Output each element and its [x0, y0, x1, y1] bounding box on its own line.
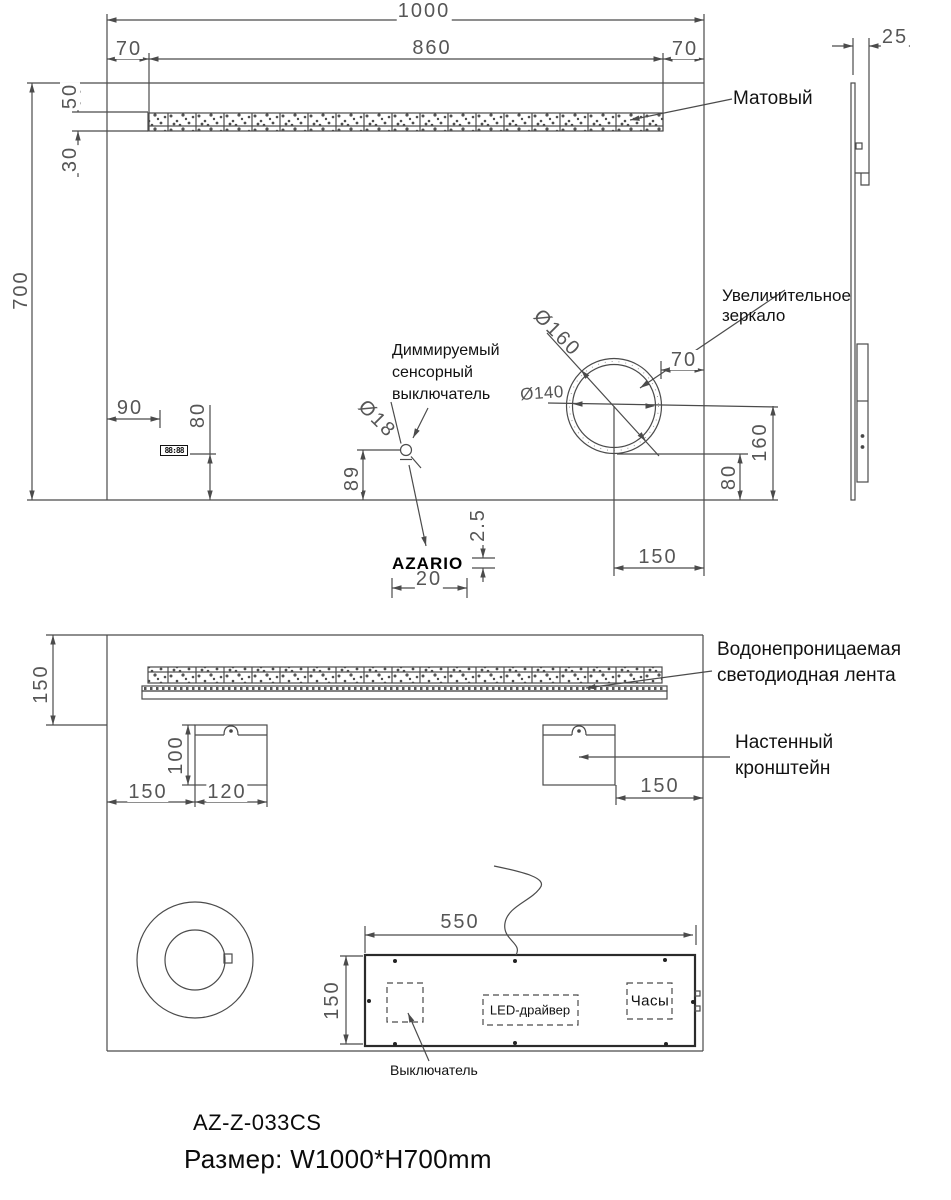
dim-bracket-height: 100 [166, 734, 186, 775]
dim-bracket-width: 120 [206, 782, 247, 802]
dim-logo-gap: 2.5 [468, 507, 488, 543]
label-wall-bracket: Настенный кронштейн [735, 730, 833, 782]
dim-strip-height: 30 [60, 145, 80, 173]
model-number: AZ-Z-033CS [193, 1110, 321, 1136]
digital-clock-display: 88:88 [160, 445, 188, 456]
dim-clock-left-offset: 90 [116, 398, 144, 418]
dim-bracket-right-offset: 150 [639, 776, 680, 796]
label-clock-module: Часы [631, 994, 670, 1009]
profile-lower-bracket [857, 344, 868, 482]
power-cable [494, 866, 542, 955]
dimension-arrowheads [29, 17, 878, 1044]
dim-bracket-left-offset: 150 [127, 782, 168, 802]
front-view-dimensions [32, 20, 704, 598]
dim-overall-width: 1000 [397, 1, 452, 21]
rear-view-dimensions [46, 635, 703, 1044]
overall-size-text: Размер: W1000*H700mm [184, 1144, 492, 1175]
label-dimmer-touch-switch: Диммируемый сенсорный выключатель [392, 340, 500, 406]
led-strip-housing [142, 691, 667, 699]
profile-hook-tab [856, 143, 862, 149]
rear-magnifier-back [137, 902, 253, 1018]
dim-junction-box-width: 550 [439, 912, 480, 932]
label-magnifying-mirror: Увеличительное зеркало [722, 286, 851, 326]
dim-sensor-bottom-offset: 89 [342, 464, 362, 492]
label-led-driver: LED-драйвер [490, 1004, 570, 1017]
drawing-linework [0, 0, 951, 1200]
dim-junction-box-height: 150 [322, 979, 342, 1020]
frosted-strip-rear [148, 667, 662, 683]
magnifying-mirror-circle [547, 333, 778, 576]
dim-strip-right-offset: 70 [671, 39, 699, 59]
drawing-sheet: 1000 70 860 70 25 700 50 30 90 80 Ø18 89… [0, 0, 951, 1200]
switch-box-outline [387, 983, 423, 1022]
profile-top-bracket-foot [855, 173, 869, 185]
touch-sensor-symbol [391, 402, 421, 468]
dim-magnifier-right-offset: 70 [670, 350, 698, 370]
clock-digits: 88:88 [164, 447, 183, 455]
dim-clock-bottom-offset: 80 [188, 401, 208, 429]
dim-thickness: 25 [881, 27, 909, 47]
dim-magnifier-bottom-offset: 80 [719, 463, 739, 491]
label-waterproof-led-strip: Водонепроницаемая светодиодная лента [717, 637, 901, 689]
junction-box [365, 866, 700, 1046]
frosted-strip-front [148, 113, 663, 131]
label-switch: Выключатель [390, 1062, 478, 1079]
dim-rear-strip-top-offset: 150 [31, 663, 51, 704]
front-view-mirror [27, 14, 778, 576]
wall-bracket-right [543, 725, 615, 785]
side-profile-view [832, 38, 910, 500]
dim-magnifier-center-bottom-offset: 160 [750, 421, 770, 462]
label-matte-strip: Матовый [733, 86, 813, 112]
dim-overall-height: 700 [11, 269, 31, 310]
dim-magnifier-center-right-offset: 150 [637, 547, 678, 567]
brand-logo: AZARIO [392, 555, 463, 572]
dim-strip-top-offset: 50 [60, 82, 80, 110]
dim-magnifier-inner-diameter: Ø140 [519, 383, 566, 403]
dim-strip-width: 860 [411, 38, 452, 58]
dim-strip-left-offset: 70 [115, 39, 143, 59]
wall-bracket-left [195, 725, 267, 785]
